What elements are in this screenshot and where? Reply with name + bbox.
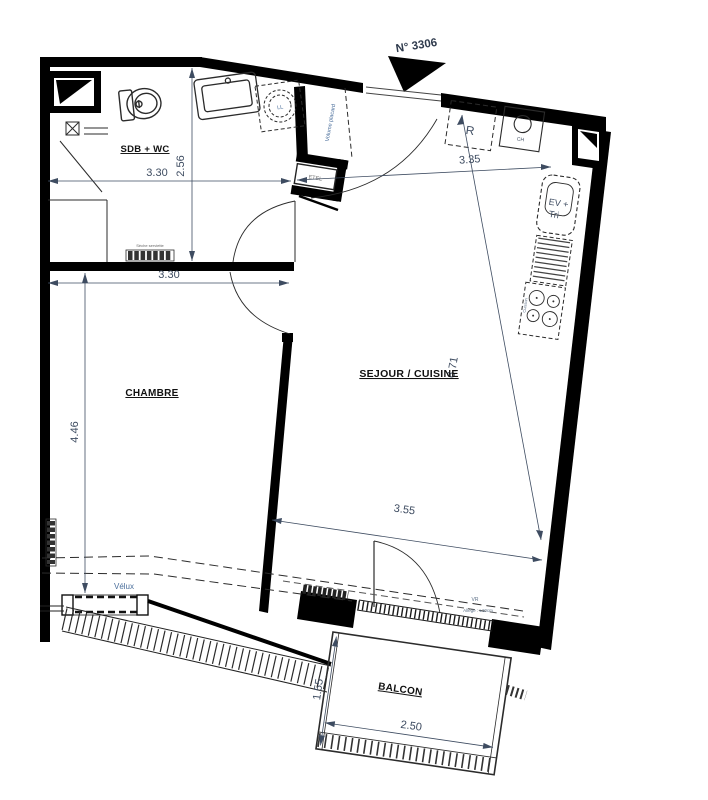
sink-unit-label-1: EV + — [548, 197, 569, 210]
dim-living-bay-width: 3.55 — [272, 503, 542, 562]
balcony-side-stub — [506, 690, 526, 696]
svg-text:3.30: 3.30 — [158, 269, 179, 281]
cooktop-label: Cuisson — [522, 298, 529, 313]
living-kitchen-label: SEJOUR / CUISINE — [359, 368, 458, 380]
fridge-label: R — [465, 123, 476, 138]
dim-balcony-width: 2.50 — [324, 708, 495, 750]
dim-bedroom-depth: 4.46 — [69, 273, 88, 593]
sink-unit-label-2: Tri — [548, 209, 560, 220]
svg-text:3.55: 3.55 — [393, 503, 416, 518]
svg-text:3.30: 3.30 — [146, 167, 167, 179]
towel-dryer-label: Sèche serviette — [136, 243, 164, 248]
svg-text:4.46: 4.46 — [69, 421, 81, 442]
washbasin — [194, 72, 261, 120]
bathroom-door — [233, 201, 295, 262]
toilet — [119, 87, 163, 121]
floor-plan-drawing: N° 3306 — [0, 0, 708, 800]
balcony-door — [374, 541, 440, 613]
bedroom-label: CHAMBRE — [125, 388, 178, 399]
bathroom-window — [47, 71, 101, 113]
dim-living-length: 6.71 — [445, 115, 543, 540]
unit-number: N° 3306 — [395, 37, 438, 55]
dim-balcony-depth: 1.55 — [305, 634, 340, 746]
velux-label: Vélux — [114, 582, 134, 591]
etel-box: ETEL — [291, 152, 349, 202]
svg-text:2.56: 2.56 — [175, 155, 187, 176]
kitchen-units: R CH EV + Tri Cuisson — [419, 99, 590, 340]
bay-window — [357, 600, 494, 631]
bathroom-label: SDB + WC — [120, 144, 169, 155]
floor-plan-page: N° 3306 — [0, 0, 708, 800]
shower — [48, 122, 108, 262]
svg-text:2.50: 2.50 — [400, 719, 423, 734]
velux-skylight: Vélux — [62, 582, 148, 615]
water-heater-label: CH — [516, 136, 524, 143]
towel-dryer: Sèche serviette — [126, 243, 174, 261]
dishwasher-hatch — [548, 240, 554, 282]
closet-volume: Volume placard — [325, 88, 352, 158]
dim-bathroom-width: 3.30 — [48, 167, 291, 184]
balcony-label: BALCON — [378, 681, 424, 698]
roller-shutter-label: VR — [472, 597, 479, 603]
closet-label: Volume placard — [325, 104, 337, 142]
cooktop: Cuisson — [518, 282, 565, 339]
duct-shaft — [572, 120, 606, 170]
north-arrow-icon: N° 3306 — [388, 37, 446, 92]
balcony: BALCON 2.50 1.55 — [304, 630, 531, 777]
sill-note-label: Allege : ±10cm — [463, 608, 493, 613]
washing-machine-label: LL — [277, 105, 284, 112]
dim-bathroom-depth: 2.56 — [175, 68, 195, 261]
